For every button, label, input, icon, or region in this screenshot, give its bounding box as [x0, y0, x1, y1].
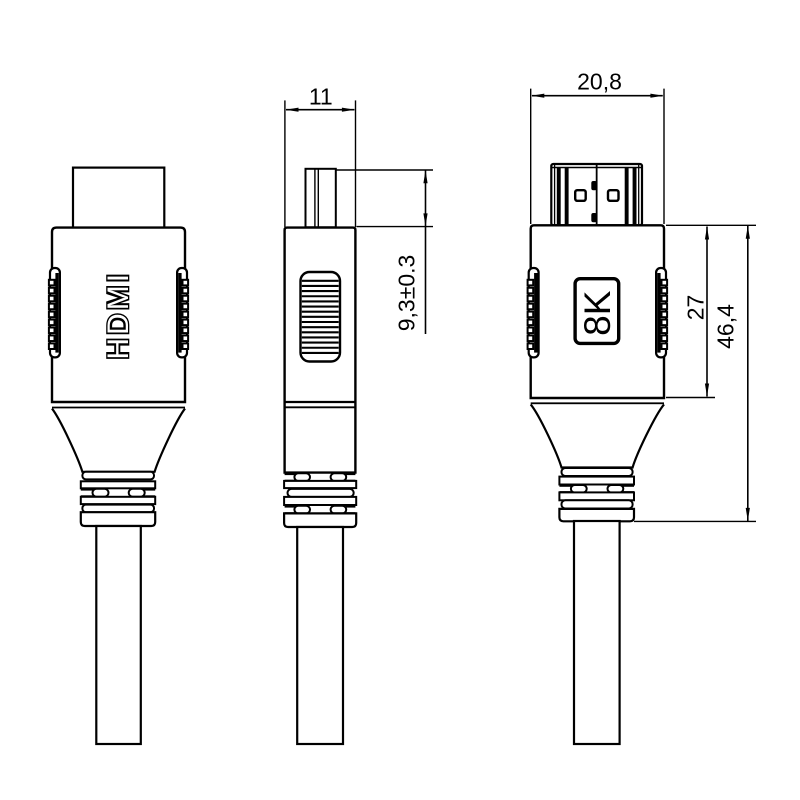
- svg-text:11: 11: [309, 84, 333, 110]
- svg-text:9,3±0.3: 9,3±0.3: [394, 255, 420, 332]
- svg-text:HDMI: HDMI: [102, 271, 135, 360]
- svg-text:27: 27: [683, 295, 709, 321]
- svg-text:8K: 8K: [577, 290, 618, 336]
- svg-text:46,4: 46,4: [713, 304, 739, 349]
- svg-text:20,8: 20,8: [577, 69, 622, 95]
